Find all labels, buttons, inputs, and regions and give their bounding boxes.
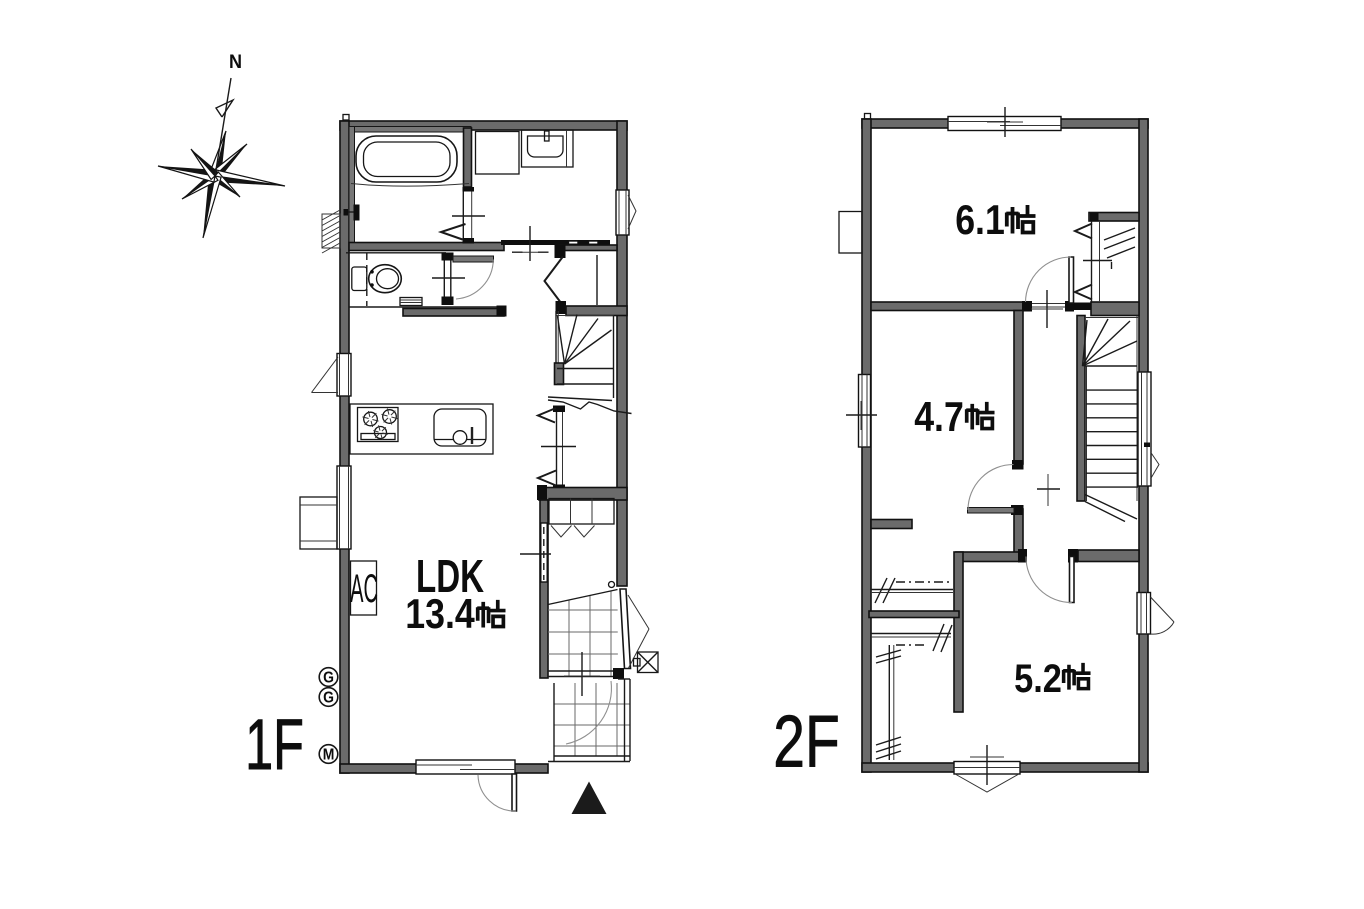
svg-text:4.7: 4.7 <box>914 395 964 441</box>
svg-text:5.2: 5.2 <box>1014 656 1062 701</box>
svg-text:2F: 2F <box>773 701 839 782</box>
svg-text:M: M <box>323 747 335 764</box>
svg-text:13.4: 13.4 <box>405 592 475 638</box>
svg-text:N: N <box>229 51 242 73</box>
svg-text:G: G <box>323 670 334 687</box>
svg-text:6.1: 6.1 <box>955 198 1005 244</box>
svg-text:1F: 1F <box>245 706 304 786</box>
svg-text:AC: AC <box>350 565 378 611</box>
svg-text:G: G <box>323 690 334 707</box>
